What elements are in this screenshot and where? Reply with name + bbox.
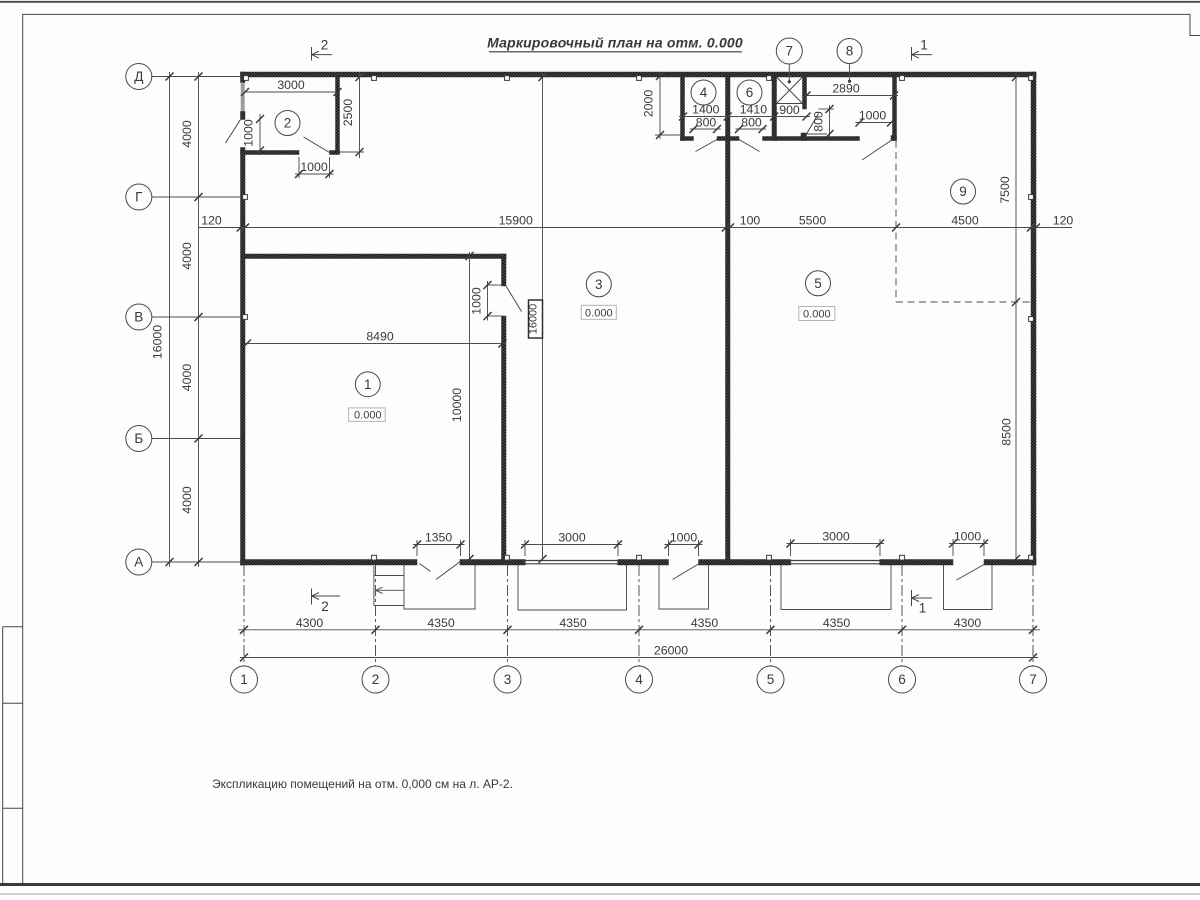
svg-text:900: 900 bbox=[779, 103, 800, 117]
svg-text:3: 3 bbox=[504, 672, 512, 687]
svg-text:1: 1 bbox=[364, 377, 372, 392]
svg-text:0.000: 0.000 bbox=[803, 309, 831, 321]
svg-text:4350: 4350 bbox=[691, 616, 719, 630]
svg-text:0.000: 0.000 bbox=[354, 409, 382, 421]
svg-text:800: 800 bbox=[812, 111, 826, 132]
svg-text:26000: 26000 bbox=[654, 644, 688, 658]
svg-text:2500: 2500 bbox=[341, 99, 355, 127]
svg-text:800: 800 bbox=[696, 115, 717, 129]
svg-text:8500: 8500 bbox=[1000, 418, 1014, 446]
svg-text:1000: 1000 bbox=[954, 530, 982, 544]
svg-text:1000: 1000 bbox=[470, 287, 484, 315]
svg-text:4350: 4350 bbox=[559, 616, 587, 630]
svg-text:3000: 3000 bbox=[277, 78, 305, 92]
svg-text:Б: Б bbox=[134, 431, 143, 446]
svg-text:4000: 4000 bbox=[180, 242, 194, 270]
svg-text:4000: 4000 bbox=[180, 486, 194, 514]
svg-text:9: 9 bbox=[959, 184, 967, 199]
svg-text:16000: 16000 bbox=[528, 304, 540, 335]
svg-text:7: 7 bbox=[1029, 672, 1037, 687]
svg-text:15900: 15900 bbox=[499, 214, 533, 228]
svg-text:4000: 4000 bbox=[180, 120, 194, 148]
svg-text:4500: 4500 bbox=[951, 214, 979, 228]
svg-text:120: 120 bbox=[201, 214, 222, 228]
svg-text:1350: 1350 bbox=[425, 531, 453, 545]
svg-text:100: 100 bbox=[740, 214, 761, 228]
svg-text:10000: 10000 bbox=[450, 388, 464, 422]
svg-text:1000: 1000 bbox=[242, 119, 256, 147]
svg-text:4: 4 bbox=[635, 672, 643, 687]
svg-text:1000: 1000 bbox=[300, 160, 328, 174]
svg-text:5: 5 bbox=[814, 276, 822, 291]
svg-text:В: В bbox=[134, 310, 143, 325]
svg-text:3000: 3000 bbox=[822, 530, 850, 544]
svg-text:4350: 4350 bbox=[823, 616, 851, 630]
svg-text:Экспликацию помещений на отм.: Экспликацию помещений на отм. 0,000 см н… bbox=[212, 777, 513, 791]
svg-text:6: 6 bbox=[746, 85, 754, 100]
svg-text:2: 2 bbox=[372, 672, 380, 687]
svg-text:2: 2 bbox=[321, 38, 329, 53]
svg-text:7500: 7500 bbox=[998, 176, 1012, 204]
svg-text:2: 2 bbox=[284, 116, 292, 131]
svg-text:1: 1 bbox=[240, 672, 248, 687]
svg-text:1: 1 bbox=[919, 601, 927, 616]
svg-text:0.000: 0.000 bbox=[585, 307, 613, 319]
svg-text:120: 120 bbox=[1053, 214, 1074, 228]
svg-text:8: 8 bbox=[846, 44, 854, 59]
svg-text:Маркировочный план на отм. 0.0: Маркировочный план на отм. 0.000 bbox=[487, 35, 743, 51]
svg-text:4300: 4300 bbox=[296, 616, 324, 630]
svg-text:3: 3 bbox=[595, 277, 603, 292]
svg-text:4350: 4350 bbox=[427, 616, 455, 630]
svg-text:2: 2 bbox=[321, 599, 329, 614]
svg-text:1000: 1000 bbox=[859, 109, 887, 123]
svg-text:4300: 4300 bbox=[954, 616, 982, 630]
svg-text:Г: Г bbox=[135, 190, 143, 205]
svg-text:5: 5 bbox=[767, 672, 775, 687]
svg-text:2000: 2000 bbox=[642, 90, 656, 118]
svg-text:6: 6 bbox=[898, 672, 906, 687]
svg-text:1: 1 bbox=[920, 38, 928, 53]
svg-text:А: А bbox=[134, 555, 143, 570]
svg-text:4: 4 bbox=[700, 85, 708, 100]
svg-text:4000: 4000 bbox=[180, 364, 194, 392]
svg-text:7: 7 bbox=[786, 44, 794, 59]
svg-text:2890: 2890 bbox=[832, 82, 860, 96]
svg-text:3000: 3000 bbox=[558, 531, 586, 545]
svg-text:5500: 5500 bbox=[799, 214, 827, 228]
svg-text:1000: 1000 bbox=[670, 531, 698, 545]
svg-text:Д: Д bbox=[134, 69, 143, 84]
svg-text:16000: 16000 bbox=[151, 325, 165, 359]
svg-text:800: 800 bbox=[741, 115, 762, 129]
svg-text:8490: 8490 bbox=[366, 330, 394, 344]
